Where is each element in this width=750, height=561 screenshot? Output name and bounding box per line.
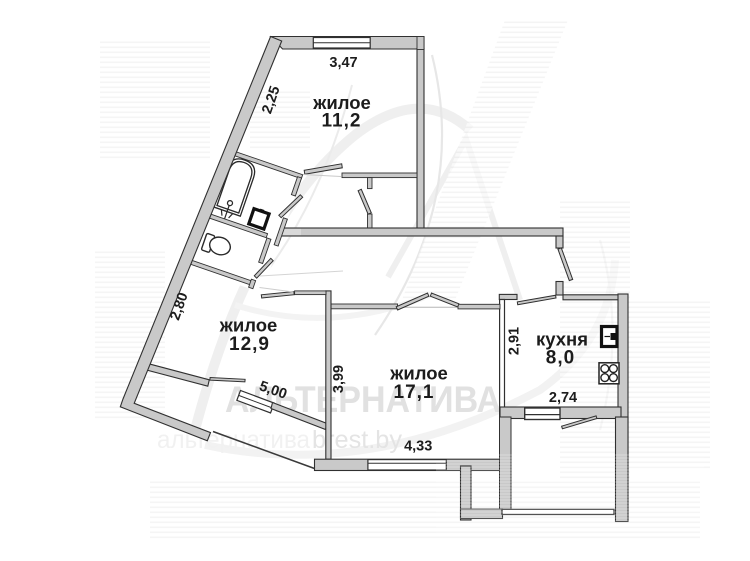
svg-text:2,91: 2,91 xyxy=(507,327,523,355)
svg-text:8,0: 8,0 xyxy=(546,348,575,369)
svg-text:жилое: жилое xyxy=(389,362,448,383)
svg-text:кухня: кухня xyxy=(536,329,588,350)
svg-text:3,99: 3,99 xyxy=(331,365,347,393)
svg-text:11,2: 11,2 xyxy=(322,111,362,132)
svg-text:17,1: 17,1 xyxy=(394,382,435,403)
svg-text:4,33: 4,33 xyxy=(404,438,432,454)
svg-text:жилое: жилое xyxy=(219,314,278,335)
svg-text:2,74: 2,74 xyxy=(549,390,577,406)
svg-text:12,9: 12,9 xyxy=(229,334,270,355)
svg-text:3,47: 3,47 xyxy=(329,55,357,71)
